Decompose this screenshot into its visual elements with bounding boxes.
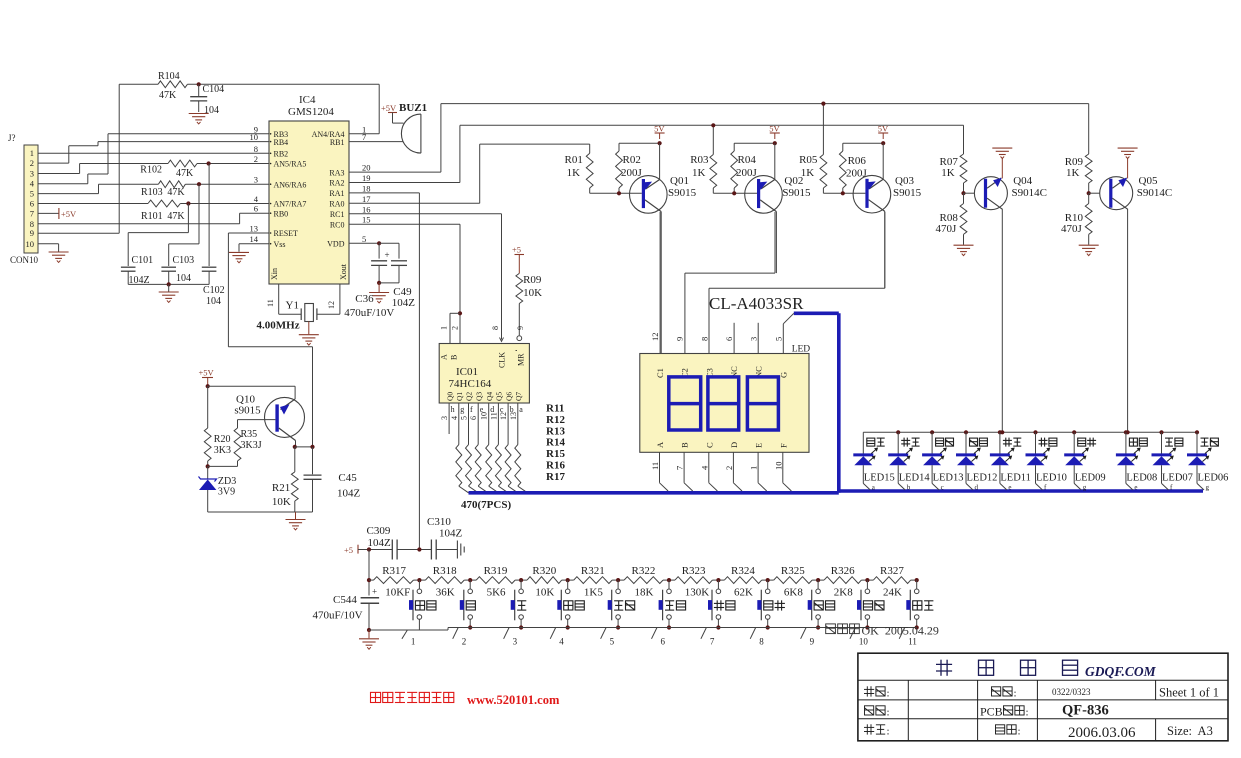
svg-text:d: d xyxy=(975,484,979,492)
svg-text:3: 3 xyxy=(749,337,759,341)
svg-text:20: 20 xyxy=(362,163,371,173)
svg-text:Q03: Q03 xyxy=(895,175,914,187)
svg-text:Q7: Q7 xyxy=(514,392,523,401)
svg-text:R323: R323 xyxy=(682,565,706,577)
svg-text:3: 3 xyxy=(254,175,258,185)
svg-text:5V: 5V xyxy=(878,124,889,134)
svg-text:Q4: Q4 xyxy=(485,392,494,401)
svg-text:Size: A3: Size: A3 xyxy=(1167,724,1213,738)
svg-text:R17: R17 xyxy=(546,471,565,483)
svg-text:104Z: 104Z xyxy=(368,537,392,549)
svg-text:MR: MR xyxy=(517,353,526,366)
svg-text:5: 5 xyxy=(773,337,783,341)
svg-text:R320: R320 xyxy=(532,565,556,577)
svg-text:11: 11 xyxy=(489,412,498,420)
svg-text:62K: 62K xyxy=(734,587,753,599)
svg-text:e: e xyxy=(1008,484,1011,492)
svg-text:Vss: Vss xyxy=(274,240,286,249)
svg-text:s9015: s9015 xyxy=(234,405,261,417)
svg-text:S9015: S9015 xyxy=(668,187,697,199)
svg-text:104: 104 xyxy=(206,296,221,307)
svg-text:Q05: Q05 xyxy=(1139,175,1158,187)
svg-text:R15: R15 xyxy=(546,448,565,460)
svg-text:104Z: 104Z xyxy=(337,488,361,500)
svg-text:6: 6 xyxy=(254,204,258,214)
svg-text:18: 18 xyxy=(362,183,371,193)
svg-text:13: 13 xyxy=(509,412,518,420)
svg-text:A: A xyxy=(655,441,665,448)
svg-text:C310: C310 xyxy=(427,516,451,528)
svg-text::: : xyxy=(887,707,890,719)
svg-text:+5: +5 xyxy=(512,245,521,255)
svg-text:7: 7 xyxy=(30,208,34,218)
svg-text:RESET: RESET xyxy=(274,229,299,238)
svg-text:C104: C104 xyxy=(203,84,225,95)
svg-text:C45: C45 xyxy=(338,472,357,484)
svg-text:RB4: RB4 xyxy=(274,138,289,147)
svg-text:C103: C103 xyxy=(173,255,195,266)
svg-text:CLK: CLK xyxy=(498,352,507,368)
svg-text:47K: 47K xyxy=(167,187,185,198)
svg-text:47K: 47K xyxy=(176,168,194,179)
svg-text:D: D xyxy=(729,442,739,448)
svg-text:R319: R319 xyxy=(484,565,508,577)
svg-text:R325: R325 xyxy=(781,565,805,577)
svg-text::: : xyxy=(887,688,890,700)
svg-text:+5V: +5V xyxy=(199,368,215,378)
svg-text:f: f xyxy=(470,405,473,414)
svg-text:+5: +5 xyxy=(344,545,353,555)
svg-text:15: 15 xyxy=(362,215,371,225)
svg-text:LED11: LED11 xyxy=(1000,473,1031,484)
svg-text:a: a xyxy=(519,405,523,414)
svg-text:8: 8 xyxy=(491,326,500,330)
svg-text:C309: C309 xyxy=(367,525,391,537)
svg-text:RC0: RC0 xyxy=(330,220,345,229)
svg-text:+5V: +5V xyxy=(381,103,397,113)
svg-text:470(7PCS): 470(7PCS) xyxy=(461,499,511,511)
svg-text:R21: R21 xyxy=(272,482,290,494)
svg-text:74HC164: 74HC164 xyxy=(449,378,492,390)
svg-text:19: 19 xyxy=(362,173,371,183)
svg-text:R103: R103 xyxy=(141,187,163,198)
svg-text:ZD3: ZD3 xyxy=(218,476,236,487)
svg-text:47K: 47K xyxy=(159,90,177,101)
svg-text:R321: R321 xyxy=(581,565,605,577)
svg-text:8: 8 xyxy=(699,337,709,341)
svg-text:GMS1204: GMS1204 xyxy=(288,106,334,118)
svg-text:9: 9 xyxy=(675,337,685,341)
svg-text:9: 9 xyxy=(30,228,34,238)
svg-text:10: 10 xyxy=(480,412,489,420)
svg-text:11: 11 xyxy=(908,637,917,647)
svg-text:R326: R326 xyxy=(831,565,855,577)
svg-text:5K6: 5K6 xyxy=(487,587,506,599)
svg-text:13: 13 xyxy=(250,224,259,234)
svg-text:Sheet 1 of 1: Sheet 1 of 1 xyxy=(1159,686,1219,700)
svg-text:GDQF.COM: GDQF.COM xyxy=(1085,664,1157,679)
svg-text::: : xyxy=(1018,726,1021,738)
svg-text:E: E xyxy=(754,443,764,448)
svg-text:470uF/10V: 470uF/10V xyxy=(313,610,363,622)
svg-text:11: 11 xyxy=(266,299,275,307)
svg-text:RB2: RB2 xyxy=(274,150,289,159)
svg-text:C544: C544 xyxy=(333,594,357,606)
svg-text:3K3: 3K3 xyxy=(214,445,231,456)
svg-text:1K: 1K xyxy=(941,167,955,179)
svg-text:16: 16 xyxy=(362,204,371,214)
svg-text:6K8: 6K8 xyxy=(784,587,803,599)
svg-text:g: g xyxy=(1083,484,1087,492)
svg-text:RA3: RA3 xyxy=(329,168,344,177)
svg-text:10K: 10K xyxy=(272,496,291,508)
svg-text:47K: 47K xyxy=(167,211,185,222)
svg-text:F: F xyxy=(778,443,788,448)
svg-text:R327: R327 xyxy=(880,565,904,577)
svg-text:10: 10 xyxy=(773,462,783,471)
svg-text:R09: R09 xyxy=(523,274,542,286)
svg-text:1K: 1K xyxy=(801,167,815,179)
svg-text:LED06: LED06 xyxy=(1198,473,1229,484)
svg-text:LED13: LED13 xyxy=(933,473,964,484)
svg-text:S9014C: S9014C xyxy=(1137,187,1172,199)
svg-text:3K3J: 3K3J xyxy=(241,440,262,451)
svg-text:2: 2 xyxy=(30,158,34,168)
svg-text:RA2: RA2 xyxy=(329,179,344,188)
svg-text:S9014C: S9014C xyxy=(1012,187,1047,199)
svg-text:24K: 24K xyxy=(883,587,902,599)
svg-text:2: 2 xyxy=(462,637,467,647)
svg-text:AN6/RA6: AN6/RA6 xyxy=(274,180,307,189)
svg-text:R01: R01 xyxy=(565,154,583,166)
svg-text:7: 7 xyxy=(710,637,715,647)
svg-text:LED08: LED08 xyxy=(1126,473,1157,484)
svg-text:R14: R14 xyxy=(546,437,565,449)
svg-text:R324: R324 xyxy=(731,565,755,577)
svg-text:2: 2 xyxy=(724,466,734,470)
svg-text:2: 2 xyxy=(450,326,459,330)
svg-text:Q0: Q0 xyxy=(445,392,454,401)
svg-text:36K: 36K xyxy=(436,587,455,599)
svg-text:1: 1 xyxy=(749,466,759,470)
svg-text:1K5: 1K5 xyxy=(584,587,603,599)
svg-text:10: 10 xyxy=(859,637,869,647)
svg-text:R06: R06 xyxy=(848,155,867,167)
svg-text:Q01: Q01 xyxy=(670,175,689,187)
svg-text:LED14: LED14 xyxy=(899,473,931,484)
svg-text::: : xyxy=(1026,707,1029,719)
svg-text:Y1: Y1 xyxy=(286,300,299,312)
svg-text:R35: R35 xyxy=(241,429,258,440)
svg-text:470uF/10V: 470uF/10V xyxy=(344,307,394,319)
svg-text:R05: R05 xyxy=(799,154,818,166)
svg-text:5: 5 xyxy=(30,189,34,199)
svg-text::: : xyxy=(1014,688,1017,700)
svg-text:Q1: Q1 xyxy=(455,392,464,401)
svg-text:2K8: 2K8 xyxy=(834,587,853,599)
svg-text:3: 3 xyxy=(513,637,518,647)
svg-text:e: e xyxy=(1134,484,1137,492)
svg-text:+: + xyxy=(385,250,390,260)
svg-text:6: 6 xyxy=(724,337,734,341)
svg-text:11: 11 xyxy=(650,462,660,470)
svg-text:10KF: 10KF xyxy=(385,587,410,599)
svg-text:104Z: 104Z xyxy=(439,528,463,540)
svg-text:12: 12 xyxy=(327,301,336,309)
svg-text:OK 2005.04.29: OK 2005.04.29 xyxy=(862,624,939,638)
svg-text:C36: C36 xyxy=(355,293,374,305)
svg-text:C: C xyxy=(704,442,714,448)
svg-text:CON10: CON10 xyxy=(10,255,39,265)
svg-text:RB0: RB0 xyxy=(274,209,289,218)
svg-text:B: B xyxy=(449,355,458,360)
svg-text:5V: 5V xyxy=(769,124,780,134)
svg-text:AN5/RA5: AN5/RA5 xyxy=(274,160,307,169)
svg-text:S9015: S9015 xyxy=(893,187,922,199)
svg-text:0322/0323: 0322/0323 xyxy=(1052,687,1091,697)
svg-text:14: 14 xyxy=(250,234,259,244)
svg-text:470J: 470J xyxy=(1061,223,1083,235)
svg-text:2006.03.06: 2006.03.06 xyxy=(1068,725,1136,741)
svg-text:1K: 1K xyxy=(692,167,706,179)
svg-text:12: 12 xyxy=(650,333,660,342)
svg-text:Q5: Q5 xyxy=(495,392,504,401)
svg-text:c: c xyxy=(941,484,944,492)
svg-text:b: b xyxy=(907,484,911,492)
svg-text:g: g xyxy=(460,405,464,414)
svg-text:g: g xyxy=(1206,484,1210,492)
svg-text:1: 1 xyxy=(411,637,416,647)
svg-text:4: 4 xyxy=(559,637,564,647)
svg-text:6: 6 xyxy=(469,416,478,420)
svg-text:C101: C101 xyxy=(132,255,154,266)
svg-text:104: 104 xyxy=(204,105,219,116)
svg-text:R317: R317 xyxy=(382,565,406,577)
svg-text:9: 9 xyxy=(516,326,525,330)
svg-text:LED: LED xyxy=(792,345,811,355)
svg-text:A: A xyxy=(440,354,449,360)
svg-text:QF-836: QF-836 xyxy=(1062,703,1109,719)
svg-text:1: 1 xyxy=(30,148,34,158)
svg-text:LED09: LED09 xyxy=(1075,473,1106,484)
svg-text:2: 2 xyxy=(254,154,258,164)
svg-text:200J: 200J xyxy=(846,168,868,180)
svg-text:R11: R11 xyxy=(546,403,564,415)
svg-text:S9015: S9015 xyxy=(782,187,811,199)
svg-text:R12: R12 xyxy=(546,414,565,426)
svg-text:PCB: PCB xyxy=(980,705,1003,719)
svg-text:IC01: IC01 xyxy=(456,366,478,378)
svg-text:RC1: RC1 xyxy=(330,210,345,219)
svg-text:3V9: 3V9 xyxy=(218,487,235,498)
svg-text:3: 3 xyxy=(30,169,34,179)
svg-text:200J: 200J xyxy=(621,167,643,179)
svg-text:LED12: LED12 xyxy=(967,473,998,484)
svg-text:Xout: Xout xyxy=(339,263,348,280)
svg-text:h: h xyxy=(451,405,455,414)
svg-text:Xin: Xin xyxy=(270,268,279,280)
svg-text:8: 8 xyxy=(254,144,258,154)
svg-text:RA0: RA0 xyxy=(329,200,344,209)
svg-text:R102: R102 xyxy=(140,165,162,176)
svg-text:RA1: RA1 xyxy=(329,189,344,198)
svg-text:R13: R13 xyxy=(546,425,565,437)
svg-text::: : xyxy=(887,726,890,738)
svg-text:9: 9 xyxy=(810,637,815,647)
svg-text:www.520101.com: www.520101.com xyxy=(467,693,560,707)
svg-text:C102: C102 xyxy=(203,285,225,296)
svg-text:1K: 1K xyxy=(567,167,581,179)
svg-text:Q6: Q6 xyxy=(504,392,513,401)
svg-text:LED10: LED10 xyxy=(1036,473,1067,484)
svg-text:5: 5 xyxy=(610,637,615,647)
svg-text:C1: C1 xyxy=(655,368,665,378)
svg-text:10: 10 xyxy=(26,239,35,249)
svg-text:18K: 18K xyxy=(635,587,654,599)
svg-text:7: 7 xyxy=(675,466,685,470)
svg-text:6: 6 xyxy=(30,199,34,209)
svg-text:+: + xyxy=(372,587,377,597)
svg-text:RB1: RB1 xyxy=(330,138,345,147)
svg-text:R04: R04 xyxy=(738,154,757,166)
svg-text:LED07: LED07 xyxy=(1162,473,1193,484)
svg-text:BUZ1: BUZ1 xyxy=(399,102,427,114)
svg-text:10K: 10K xyxy=(535,587,554,599)
svg-text:LED15: LED15 xyxy=(864,473,895,484)
svg-text:5: 5 xyxy=(460,416,469,420)
svg-text:Q3: Q3 xyxy=(474,392,483,401)
svg-text:12: 12 xyxy=(499,412,508,420)
svg-text:IC4: IC4 xyxy=(299,94,316,106)
svg-text:R322: R322 xyxy=(632,565,656,577)
svg-text:104: 104 xyxy=(176,273,191,284)
svg-text:J?: J? xyxy=(8,133,16,143)
svg-text:B: B xyxy=(680,442,690,448)
svg-text:R104: R104 xyxy=(158,71,180,82)
svg-text:CL-A4033SR: CL-A4033SR xyxy=(709,294,804,313)
svg-text:6: 6 xyxy=(661,637,666,647)
svg-text:4.00MHz: 4.00MHz xyxy=(257,320,300,332)
svg-text:R16: R16 xyxy=(546,460,565,472)
svg-text:R20: R20 xyxy=(214,434,231,445)
svg-text:VDD: VDD xyxy=(327,240,345,249)
svg-text:10: 10 xyxy=(250,132,259,142)
svg-text:4: 4 xyxy=(450,416,459,420)
svg-text:104Z: 104Z xyxy=(392,297,416,309)
svg-text:7: 7 xyxy=(362,132,366,142)
svg-text:1: 1 xyxy=(440,326,449,330)
svg-text:Q2: Q2 xyxy=(465,392,474,401)
svg-text:5V: 5V xyxy=(654,124,665,134)
svg-text:+5V: +5V xyxy=(61,209,77,219)
svg-text:17: 17 xyxy=(362,194,371,204)
svg-text:R318: R318 xyxy=(433,565,457,577)
svg-text:4: 4 xyxy=(699,465,709,470)
svg-text:200J: 200J xyxy=(736,167,758,179)
svg-text:3: 3 xyxy=(440,416,449,420)
svg-text:8: 8 xyxy=(759,637,764,647)
svg-text:R03: R03 xyxy=(690,154,709,166)
svg-text:R02: R02 xyxy=(623,154,641,166)
svg-text:R101: R101 xyxy=(141,211,163,222)
svg-text:AN7/RA7: AN7/RA7 xyxy=(274,200,307,209)
svg-text:130K: 130K xyxy=(685,587,710,599)
svg-text:Q04: Q04 xyxy=(1013,175,1032,187)
svg-text:10K: 10K xyxy=(523,287,542,299)
svg-text:1K: 1K xyxy=(1066,167,1080,179)
svg-text:470J: 470J xyxy=(936,223,958,235)
svg-text:5: 5 xyxy=(362,234,366,244)
